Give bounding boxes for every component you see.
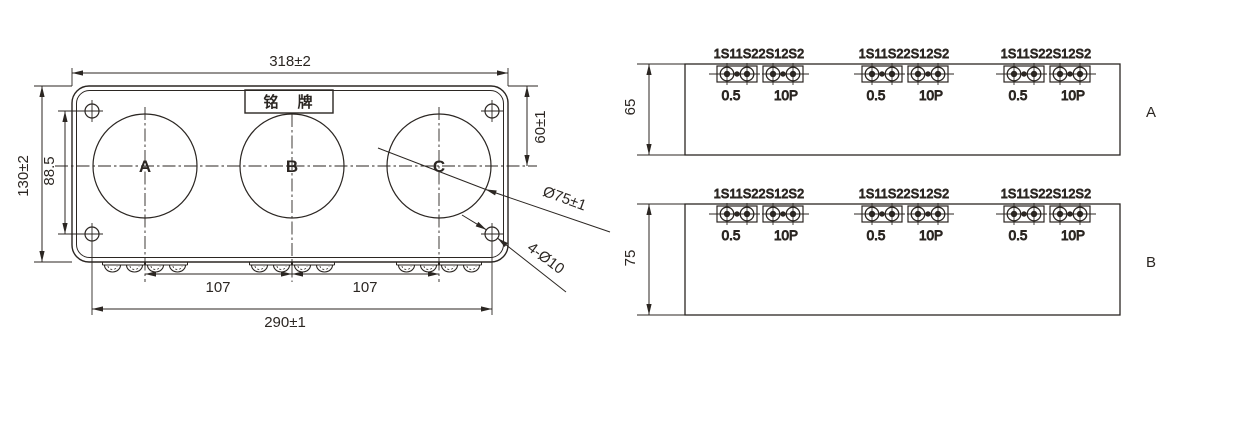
terminal-markings-label: 1S11S22S12S2 bbox=[714, 187, 804, 201]
accuracy-class-10p-label: 10P bbox=[1061, 228, 1085, 243]
leader-lines bbox=[378, 148, 610, 292]
terminal-link-dot bbox=[781, 212, 785, 216]
dim-hole-pitch-v-label: 88.5 bbox=[41, 156, 58, 185]
dim-pitch-right-label: 107 bbox=[352, 279, 377, 296]
terminal-group-a2: 1S11S22S12S20.510P bbox=[854, 47, 956, 103]
terminal-bump-hidden-arc bbox=[320, 266, 329, 270]
terminal-link-dot bbox=[926, 212, 930, 216]
terminal-group-a1: 1S11S22S12S20.510P bbox=[709, 47, 811, 103]
terminal-bump bbox=[105, 265, 121, 272]
accuracy-class-0p5-label: 0.5 bbox=[1009, 228, 1028, 243]
terminal-bump-hidden-arc bbox=[402, 266, 411, 270]
accuracy-class-10p-label: 10P bbox=[774, 228, 798, 243]
terminal-link-dot bbox=[781, 72, 785, 76]
front-view: 318±2 130±2 88.5 60±1 Ø75±1 4-Ø10 107 10… bbox=[15, 53, 610, 331]
dim-pitch-left-label: 107 bbox=[205, 279, 230, 296]
dim-top-offset-label: 60±1 bbox=[532, 110, 549, 143]
dim-depth-a-label: 65 bbox=[622, 99, 639, 116]
terminal-groups: 1S11S22S12S20.510P1S11S22S12S20.510P1S11… bbox=[709, 47, 1098, 243]
dim-corner-holes-label: 4-Ø10 bbox=[524, 239, 568, 278]
window-c-label: C bbox=[433, 157, 445, 176]
dim-overall-width-label: 318±2 bbox=[269, 53, 311, 70]
terminal-bump bbox=[274, 265, 290, 272]
terminal-bump-hidden-arc bbox=[277, 266, 286, 270]
terminal-bump-hidden-arc bbox=[467, 266, 476, 270]
terminal-markings-label: 1S11S22S12S2 bbox=[859, 187, 949, 201]
terminal-group-b3: 1S11S22S12S20.510P bbox=[996, 187, 1098, 243]
terminal-markings-label: 1S11S22S12S2 bbox=[1001, 47, 1091, 61]
nameplate-label: 铭 牌 bbox=[263, 93, 314, 111]
terminal-bump bbox=[421, 265, 437, 272]
dim-mount-width-label: 290±1 bbox=[264, 314, 306, 331]
terminal-bump-hidden-arc bbox=[445, 266, 454, 270]
terminal-bump bbox=[317, 265, 333, 272]
terminal-link-dot bbox=[880, 72, 884, 76]
terminal-bump bbox=[148, 265, 164, 272]
terminal-group-b2: 1S11S22S12S20.510P bbox=[854, 187, 956, 243]
accuracy-class-10p-label: 10P bbox=[919, 228, 943, 243]
terminal-bump-hidden-arc bbox=[130, 266, 139, 270]
terminal-link-dot bbox=[880, 212, 884, 216]
side-view-a-label: A bbox=[1146, 104, 1156, 121]
dim-depth-b-label: 75 bbox=[622, 250, 639, 267]
terminal-bump bbox=[442, 265, 458, 272]
terminal-markings-label: 1S11S22S12S2 bbox=[714, 47, 804, 61]
terminal-bump bbox=[252, 265, 268, 272]
terminal-bump-hidden-arc bbox=[151, 266, 160, 270]
accuracy-class-0p5-label: 0.5 bbox=[867, 88, 886, 103]
ct-outline-drawing: 318±2 130±2 88.5 60±1 Ø75±1 4-Ø10 107 10… bbox=[0, 0, 1248, 432]
accuracy-class-0p5-label: 0.5 bbox=[1009, 88, 1028, 103]
accuracy-class-10p-label: 10P bbox=[1061, 88, 1085, 103]
window-a-label: A bbox=[139, 157, 151, 176]
terminal-bump bbox=[127, 265, 143, 272]
accuracy-class-0p5-label: 0.5 bbox=[722, 228, 741, 243]
terminal-link-dot bbox=[1068, 72, 1072, 76]
terminal-link-dot bbox=[1068, 212, 1072, 216]
terminal-markings-label: 1S11S22S12S2 bbox=[859, 47, 949, 61]
terminal-link-dot bbox=[926, 72, 930, 76]
dim-overall-height-label: 130±2 bbox=[15, 155, 32, 197]
terminal-bump bbox=[295, 265, 311, 272]
terminal-markings-label: 1S11S22S12S2 bbox=[1001, 187, 1091, 201]
accuracy-class-0p5-label: 0.5 bbox=[722, 88, 741, 103]
accuracy-class-10p-label: 10P bbox=[919, 88, 943, 103]
terminal-link-dot bbox=[1022, 72, 1026, 76]
terminal-bump-hidden-arc bbox=[424, 266, 433, 270]
side-extension-lines bbox=[637, 64, 685, 315]
terminal-bump bbox=[399, 265, 415, 272]
accuracy-class-0p5-label: 0.5 bbox=[867, 228, 886, 243]
side-views: 1S11S22S12S20.510P1S11S22S12S20.510P1S11… bbox=[622, 47, 1156, 315]
terminal-link-dot bbox=[735, 212, 739, 216]
terminal-link-dot bbox=[1022, 212, 1026, 216]
engineering-drawing-page: 318±2 130±2 88.5 60±1 Ø75±1 4-Ø10 107 10… bbox=[0, 0, 1248, 432]
window-b-label: B bbox=[286, 157, 298, 176]
terminal-bump-hidden-arc bbox=[108, 266, 117, 270]
terminal-bump bbox=[464, 265, 480, 272]
terminal-bump-hidden-arc bbox=[173, 266, 182, 270]
terminal-link-dot bbox=[735, 72, 739, 76]
terminal-group-b1: 1S11S22S12S20.510P bbox=[709, 187, 811, 243]
center-lines bbox=[55, 107, 537, 282]
terminal-group-a3: 1S11S22S12S20.510P bbox=[996, 47, 1098, 103]
terminal-bump-hidden-arc bbox=[255, 266, 264, 270]
accuracy-class-10p-label: 10P bbox=[774, 88, 798, 103]
terminal-bump-hidden-arc bbox=[298, 266, 307, 270]
dim-window-diameter-label: Ø75±1 bbox=[541, 183, 589, 214]
hole-crosshairs bbox=[92, 100, 503, 315]
terminal-bump bbox=[170, 265, 186, 272]
side-view-b-label: B bbox=[1146, 254, 1156, 271]
